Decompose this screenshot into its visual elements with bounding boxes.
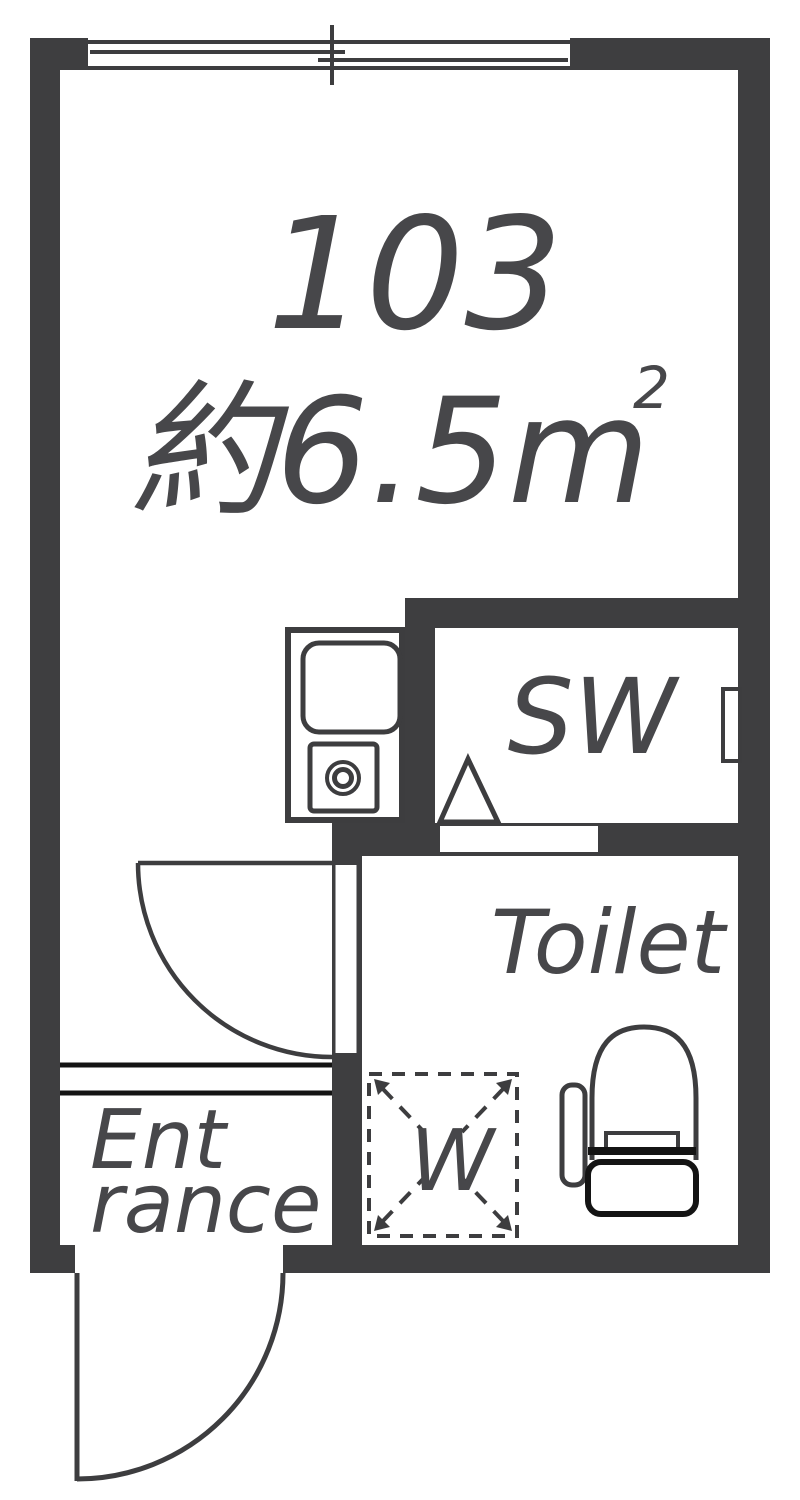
toilet-doorway-opening xyxy=(336,865,357,1053)
kitchen-sink xyxy=(303,643,400,732)
kitchen-sw-divider-wall xyxy=(405,598,435,856)
sw-closet-top-wall xyxy=(405,598,770,628)
sw-door-opening xyxy=(440,826,598,852)
washing-machine-label: W xyxy=(410,1112,497,1211)
toilet-side-handle xyxy=(562,1085,585,1185)
unit-area: 約6.5m xyxy=(130,367,650,537)
kitchen-unit xyxy=(288,630,402,820)
toilet-label: Toilet xyxy=(491,891,729,994)
outer-wall-left xyxy=(30,38,60,1273)
toilet-seat-hinge xyxy=(606,1133,678,1149)
outer-wall-right xyxy=(738,38,770,1273)
kitchen-stove xyxy=(310,744,377,811)
sw-closet-label: SW xyxy=(508,656,681,778)
floor-plan: 103 約6.5m 2 SW Toilet W Ent rance xyxy=(0,0,800,1500)
wall-niche xyxy=(723,689,740,761)
unit-area-superscript: 2 xyxy=(633,354,670,422)
entrance-label-line2: rance xyxy=(90,1157,321,1252)
toilet-tank xyxy=(588,1162,696,1214)
unit-number: 103 xyxy=(267,184,563,365)
